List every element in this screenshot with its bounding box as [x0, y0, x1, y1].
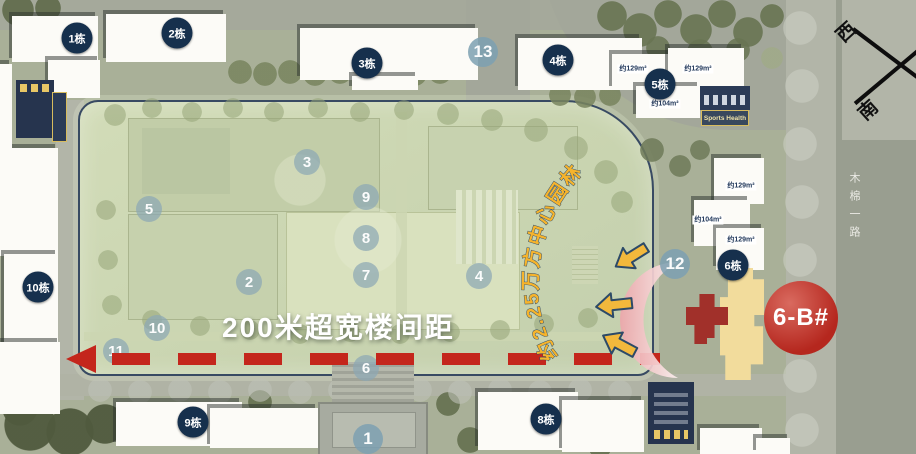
svg-text:约2.25万方中心园林: 约2.25万方中心园林	[519, 159, 587, 365]
distance-arrow-head	[66, 345, 96, 373]
building-3	[300, 28, 478, 80]
building-10-c	[0, 342, 60, 414]
node-badge-7: 7	[353, 262, 379, 288]
sports-health-sign: Sports Health	[701, 110, 749, 126]
area-label: 约104m²	[692, 216, 723, 225]
node-badge-10: 10	[144, 315, 170, 341]
building-badge-8: 8栋	[531, 404, 562, 435]
building-3-wing	[352, 76, 418, 90]
building-br-a	[700, 428, 762, 454]
area-label: 约129m²	[617, 65, 648, 74]
area-label: 约129m²	[682, 65, 713, 74]
building-edge-strip	[0, 64, 12, 152]
building-10-b	[4, 254, 58, 350]
amenity-box-topleft	[16, 80, 54, 138]
garden-arrow-icon	[593, 289, 636, 321]
node-badge-13: 13	[468, 37, 498, 67]
area-label: 约129m²	[725, 236, 756, 245]
road-name-label: 木棉一路	[846, 172, 862, 302]
building-badge-4: 4栋	[543, 45, 574, 76]
sports-health-windows	[704, 95, 746, 105]
building-badge-10: 10栋	[23, 272, 54, 303]
amenity-windows	[20, 84, 50, 92]
building-8-b	[562, 400, 644, 452]
building-9-b	[210, 408, 318, 448]
node-badge-2: 2	[236, 269, 262, 295]
node-badge-9: 9	[353, 184, 379, 210]
sports-health-building	[700, 86, 750, 110]
building-badge-9: 9栋	[178, 407, 209, 438]
node-badge-8: 8	[353, 225, 379, 251]
distance-label: 200米超宽楼间距	[222, 306, 455, 346]
building-badge-1: 1栋	[62, 23, 93, 54]
building-badge-5: 5栋	[645, 69, 676, 100]
node-badge-12: 12	[660, 249, 690, 279]
amenity-box-bottomright	[648, 382, 694, 444]
building-badge-3: 3栋	[352, 48, 383, 79]
area-label: 约104m²	[649, 100, 680, 109]
amenity-sign-left	[52, 92, 67, 142]
node-badge-1: 1	[353, 424, 383, 454]
amenity-stripes	[654, 388, 688, 424]
node-badge-3: 3	[294, 149, 320, 175]
node-badge-5: 5	[136, 196, 162, 222]
building-br-b	[756, 438, 790, 454]
site-plan: Sports Health 约129m² 约129m² 约104m² 约129m…	[0, 0, 916, 454]
building-badge-6: 6栋	[718, 250, 749, 281]
building-10-a	[0, 148, 58, 256]
building-badge-2: 2栋	[162, 18, 193, 49]
area-label: 约129m²	[725, 182, 756, 191]
amenity-windows	[654, 430, 688, 439]
unit-6b-badge: 6-B#	[764, 281, 838, 355]
node-badge-4: 4	[466, 263, 492, 289]
